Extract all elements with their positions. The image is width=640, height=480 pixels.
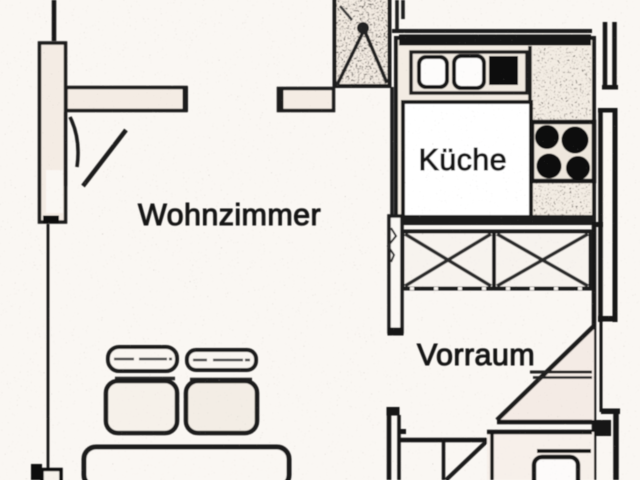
svg-text:Wohnzimmer: Wohnzimmer — [138, 198, 321, 232]
svg-text:Vorraum: Vorraum — [417, 338, 535, 372]
svg-text:Küche: Küche — [419, 143, 507, 177]
